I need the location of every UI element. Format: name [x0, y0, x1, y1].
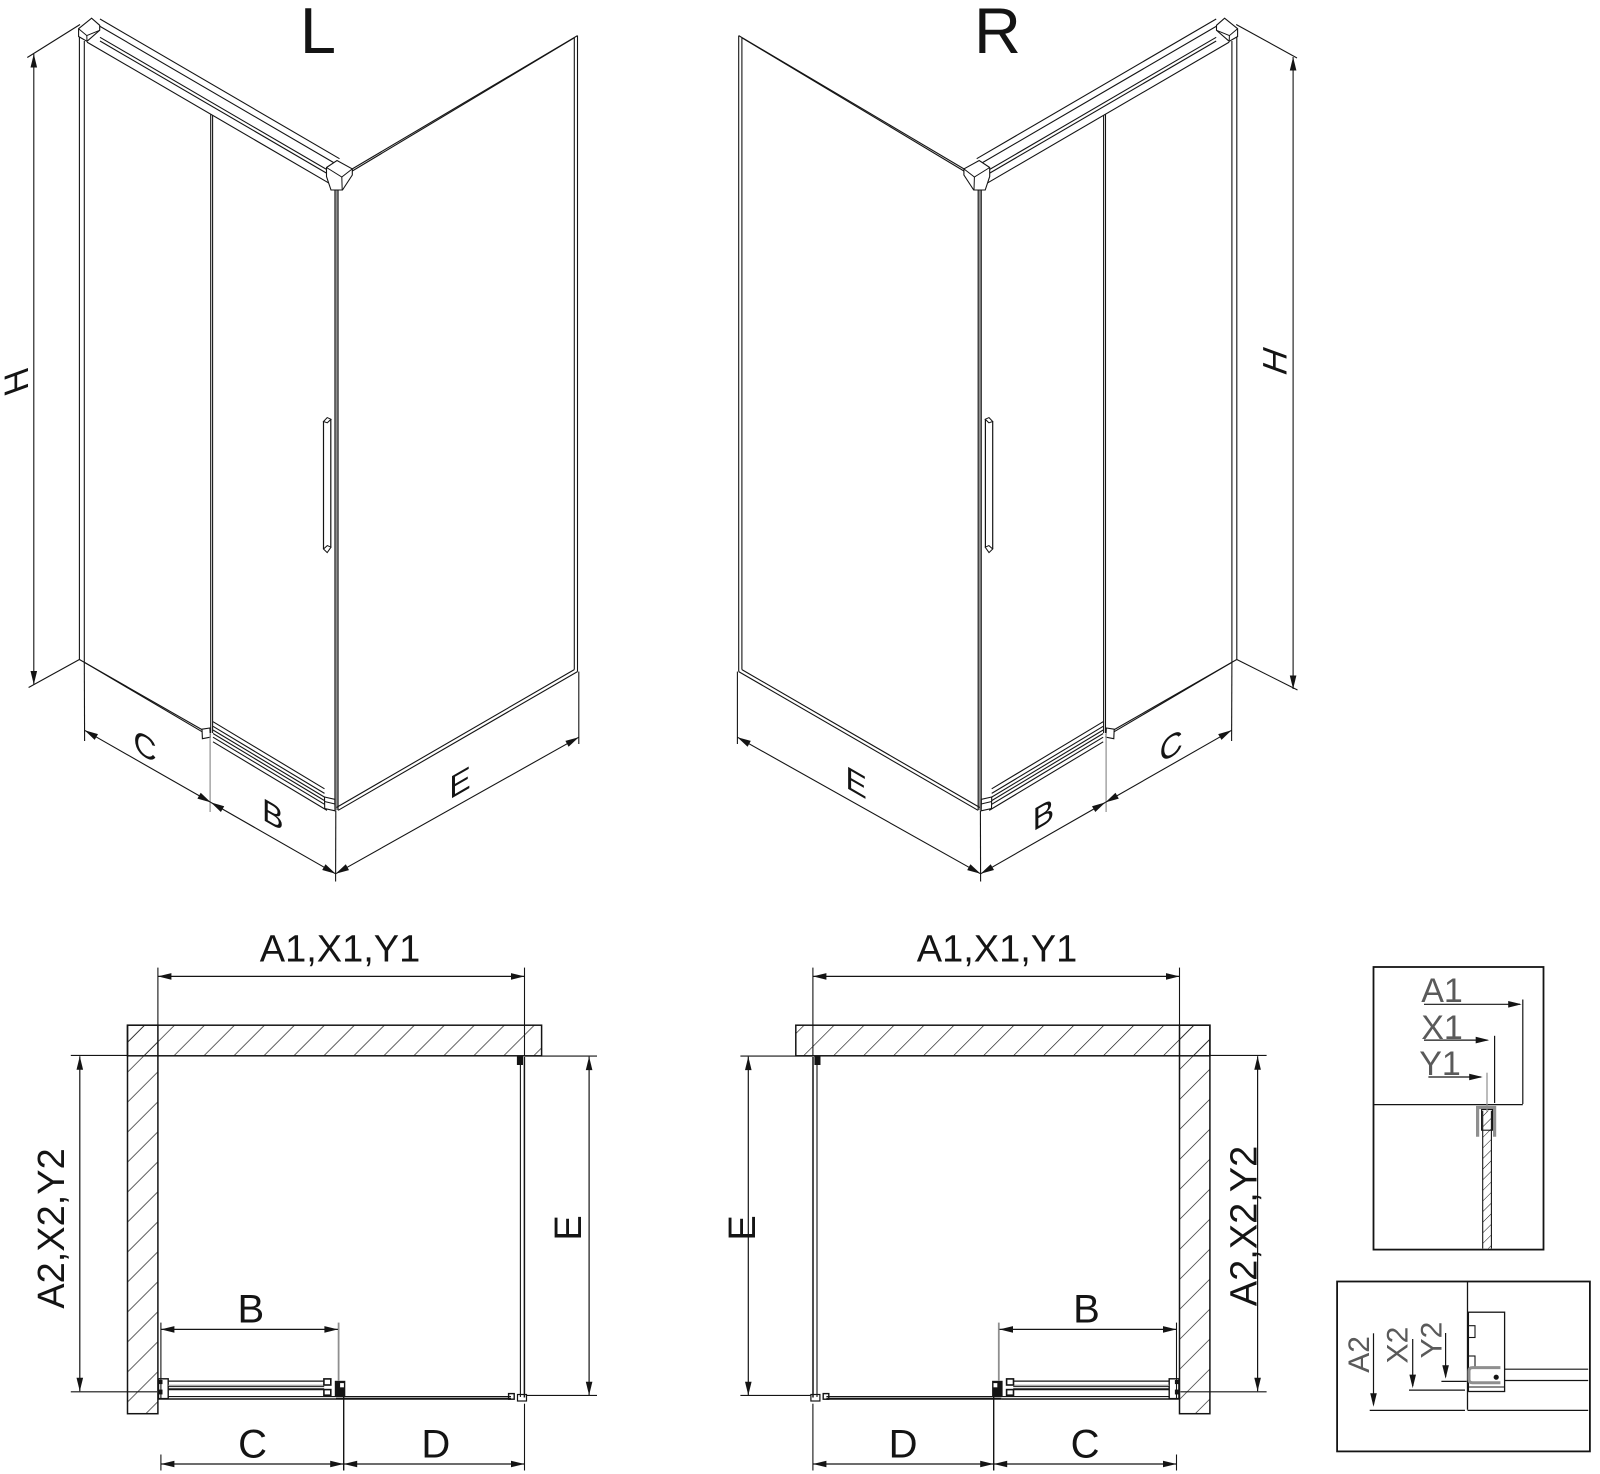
svg-text:A1,X1,Y1: A1,X1,Y1	[260, 929, 421, 971]
svg-text:C: C	[1071, 1423, 1100, 1467]
svg-text:A2,X2,Y2: A2,X2,Y2	[1224, 1146, 1266, 1307]
svg-text:D: D	[421, 1423, 450, 1467]
svg-text:A2,X2,Y2: A2,X2,Y2	[31, 1148, 73, 1309]
svg-text:C: C	[238, 1423, 267, 1467]
svg-text:X1: X1	[1421, 1009, 1463, 1047]
svg-text:A1,X1,Y1: A1,X1,Y1	[917, 929, 1078, 971]
svg-text:B: B	[238, 1288, 265, 1332]
svg-text:E: E	[722, 1215, 764, 1240]
svg-text:A2: A2	[1343, 1336, 1376, 1373]
svg-text:R: R	[974, 0, 1021, 67]
svg-text:E: E	[548, 1215, 590, 1240]
svg-text:D: D	[889, 1423, 918, 1467]
svg-text:L: L	[300, 0, 336, 67]
svg-text:B: B	[1073, 1288, 1100, 1332]
svg-text:Y2: Y2	[1415, 1322, 1448, 1359]
svg-text:X2: X2	[1382, 1327, 1415, 1364]
